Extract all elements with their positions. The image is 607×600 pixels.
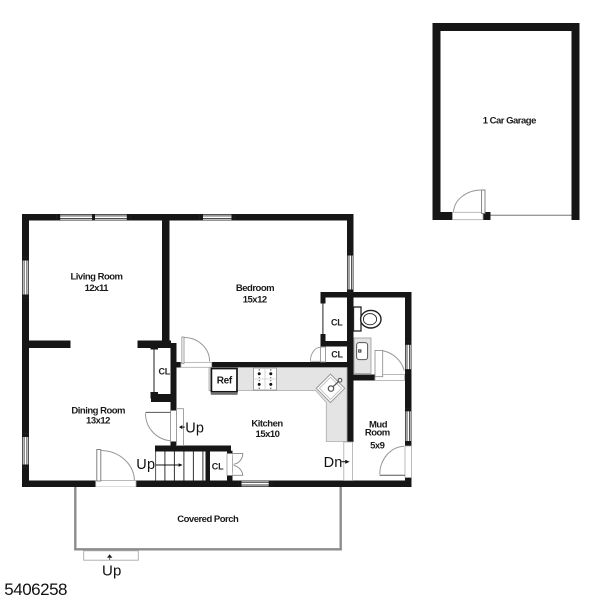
- svg-text:Up: Up: [185, 420, 204, 436]
- svg-text:CL: CL: [212, 462, 224, 472]
- svg-text:5406258: 5406258: [4, 580, 67, 599]
- svg-text:1 Car Garage: 1 Car Garage: [483, 116, 536, 127]
- svg-text:Kitchen: Kitchen: [251, 419, 283, 430]
- svg-text:Up: Up: [102, 563, 122, 580]
- svg-text:15x10: 15x10: [256, 429, 280, 440]
- svg-text:Up: Up: [136, 457, 155, 473]
- svg-text:13x12: 13x12: [86, 415, 110, 426]
- svg-text:Ref: Ref: [217, 376, 233, 387]
- svg-text:15x12: 15x12: [243, 294, 267, 305]
- svg-text:Living Room: Living Room: [70, 272, 122, 283]
- svg-text:Room: Room: [365, 427, 390, 438]
- svg-text:CL: CL: [158, 367, 170, 377]
- svg-text:CL: CL: [331, 350, 343, 360]
- svg-text:5x9: 5x9: [370, 441, 385, 452]
- svg-text:12x11: 12x11: [85, 283, 110, 294]
- svg-text:Dn: Dn: [324, 455, 343, 471]
- svg-text:CL: CL: [331, 317, 343, 327]
- svg-text:Covered Porch: Covered Porch: [177, 514, 239, 525]
- svg-text:Bedroom: Bedroom: [236, 283, 274, 294]
